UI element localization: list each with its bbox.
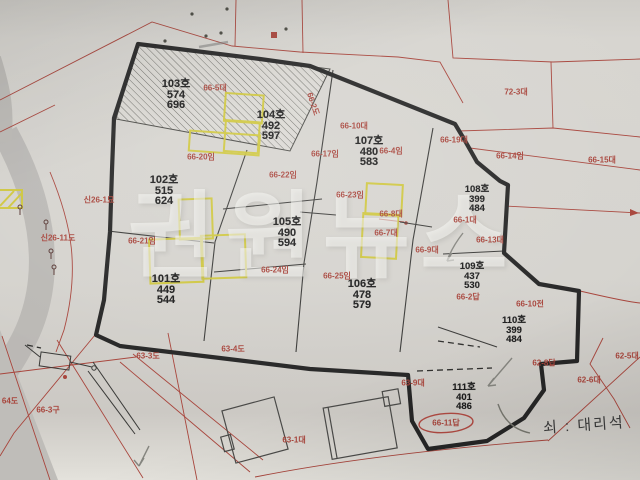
parcel-label-104: 104호 492 597 [257, 110, 285, 142]
lot-label: 66-1대 [453, 215, 476, 226]
lot-label: 63-4도 [221, 344, 244, 355]
lot-label: 66-10전 [516, 299, 544, 310]
parcel-label-110: 110호 399 484 [502, 316, 526, 345]
road-name-squiggle [199, 42, 228, 47]
parcel-no: 105호 [273, 217, 301, 228]
lot-label: 신26-11도 [41, 233, 76, 244]
lot-label: 66-22임 [269, 170, 297, 181]
parcel-no: 102호 [150, 175, 178, 186]
lot-label: 66-3구 [36, 405, 59, 416]
parcel-value-2: 579 [348, 300, 376, 311]
lot-label: 62-6대 [577, 375, 600, 386]
parcel-label-101: 101호 449 544 [152, 274, 180, 306]
lot-label: 66-14임 [496, 151, 524, 162]
parcel-label-111: 111호 401 486 [452, 383, 476, 412]
parcel-value-2: 530 [460, 281, 485, 291]
parcel-value-2: 594 [273, 238, 301, 249]
map-dots [163, 7, 287, 52]
parcel-value-2: 484 [465, 204, 490, 214]
parcel-value-2: 696 [162, 100, 190, 111]
lot-label: 62-8답 [532, 358, 555, 369]
lot-label: 66-2답 [456, 292, 479, 303]
lot-label: 66-24임 [261, 265, 289, 276]
parcel-label-102: 102호 515 624 [150, 175, 178, 207]
parcel-no: 104호 [257, 110, 285, 121]
cadastral-map-photo: 권원뉴스 103호 574 696 104호 492 597 107호 480 … [0, 0, 640, 480]
parcel-value-2: 624 [150, 196, 178, 207]
parcel-label-103: 103호 574 696 [162, 79, 190, 111]
lot-label: 66-8대 [379, 209, 402, 220]
red-arrowhead [630, 209, 639, 216]
parcel-no: 101호 [152, 274, 180, 285]
lot-label: 66-19대 [440, 135, 468, 146]
hatched-parcel-103 [116, 44, 330, 151]
building-outlines [214, 389, 408, 465]
parcel-label-109: 109호 437 530 [460, 262, 485, 291]
lot-label: 64도 [2, 396, 18, 407]
dashed-lines [27, 341, 492, 371]
lot-label: 62-5대 [615, 351, 638, 362]
lot-label: 66-21임 [128, 236, 156, 247]
lot-label: 66-13대 [476, 235, 504, 246]
lot-label: 66-10대 [340, 121, 368, 132]
lot-label: 72-3대 [504, 87, 527, 98]
lot-label: 66-4임 [379, 146, 402, 157]
lot-label: 66-15대 [588, 155, 616, 166]
lot-label: 66-7대 [374, 228, 397, 239]
parcel-value-2: 486 [452, 402, 476, 412]
lot-label: 66-25임 [323, 271, 351, 282]
lot-label: 66-20임 [187, 152, 215, 163]
parcel-value-2: 583 [355, 157, 383, 168]
red-square-marker [271, 32, 277, 38]
lot-label: 63-9대 [401, 378, 424, 389]
parcel-no: 103호 [162, 79, 190, 90]
parcel-label-105: 105호 490 594 [273, 217, 301, 249]
lot-label: 66-23임 [336, 190, 364, 201]
parcel-value-2: 484 [502, 335, 526, 345]
lot-label: 66-5대 [203, 83, 226, 94]
lot-label: 66-17임 [311, 149, 339, 160]
lot-label: 63-1대 [282, 435, 305, 446]
gray-road-band [5, 133, 42, 370]
parcel-value-2: 597 [257, 131, 285, 142]
lot-label-circled: 66-11답 [432, 418, 459, 429]
red-dot [63, 375, 67, 379]
parcel-label-108: 108호 399 484 [465, 185, 490, 214]
lot-label: 63-3도 [136, 351, 159, 362]
lot-label: 66-9대 [415, 245, 438, 256]
parcel-value-2: 544 [152, 295, 180, 306]
parcel-label-106: 106호 478 579 [348, 279, 376, 311]
parcel-no: 106호 [348, 279, 376, 290]
lot-label: 신26-1묘 [84, 195, 115, 206]
